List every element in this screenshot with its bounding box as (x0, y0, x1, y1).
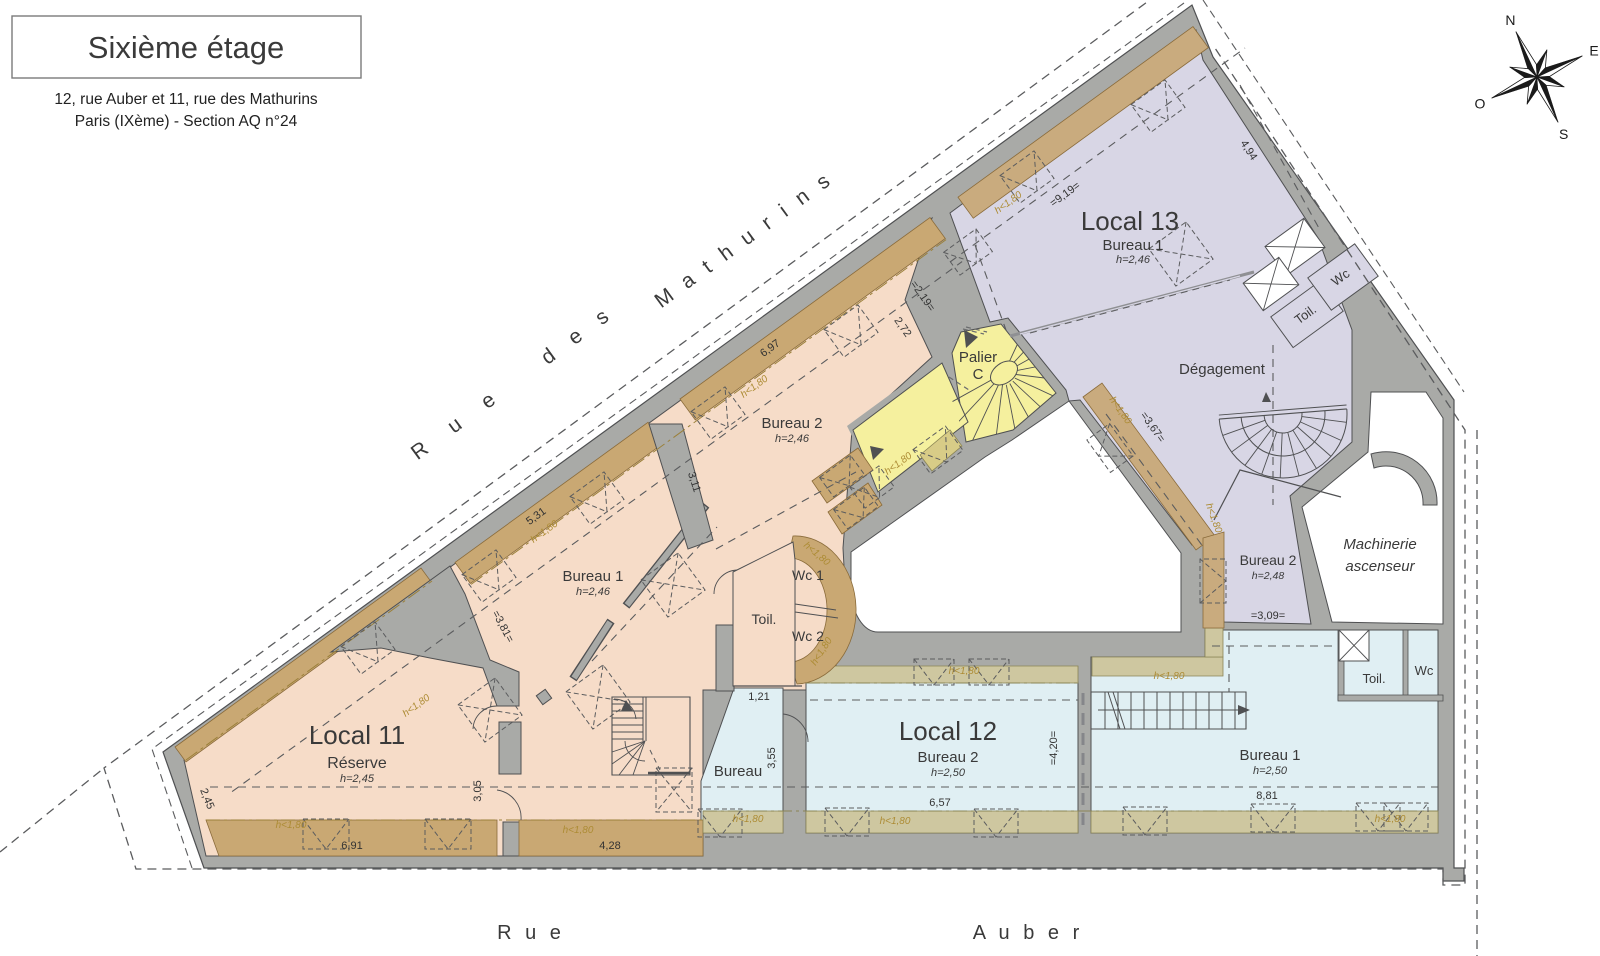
svg-text:3,05: 3,05 (472, 780, 484, 801)
svg-text:h=2,50: h=2,50 (931, 767, 966, 779)
svg-text:Toil.: Toil. (752, 611, 777, 627)
svg-text:3,55: 3,55 (766, 747, 778, 768)
svg-text:1,21: 1,21 (748, 691, 769, 703)
svg-text:E: E (1589, 42, 1598, 58)
svg-text:R u e: R u e (497, 922, 565, 944)
svg-text:Paris (IXème) - Section AQ n°2: Paris (IXème) - Section AQ n°24 (75, 113, 298, 130)
svg-text:Local 13: Local 13 (1081, 206, 1179, 236)
svg-text:C: C (973, 366, 984, 383)
svg-text:S: S (1559, 126, 1568, 142)
svg-text:N: N (1505, 12, 1515, 28)
svg-text:Machinerie: Machinerie (1343, 536, 1416, 553)
svg-text:4,28: 4,28 (599, 840, 620, 852)
svg-text:Sixième étage: Sixième étage (88, 30, 284, 65)
svg-text:h<1,80: h<1,80 (1154, 671, 1185, 682)
svg-text:Wc 1: Wc 1 (792, 567, 824, 583)
svg-text:Bureau 1: Bureau 1 (1240, 747, 1301, 764)
svg-text:Réserve: Réserve (327, 755, 387, 772)
svg-text:Wc: Wc (1415, 663, 1434, 678)
svg-text:Bureau: Bureau (714, 763, 762, 780)
svg-text:Dégagement: Dégagement (1179, 361, 1266, 378)
svg-text:Toil.: Toil. (1362, 671, 1385, 686)
svg-text:A u b e r: A u b e r (973, 922, 1084, 944)
svg-text:h=2,46: h=2,46 (775, 433, 810, 445)
svg-text:8,81: 8,81 (1256, 790, 1277, 802)
svg-text:6,57: 6,57 (929, 797, 950, 809)
svg-text:Bureau 2: Bureau 2 (918, 749, 979, 766)
svg-text:=4,20=: =4,20= (1048, 731, 1060, 765)
svg-text:ascenseur: ascenseur (1345, 558, 1415, 575)
svg-text:12, rue Auber et 11, rue des M: 12, rue Auber et 11, rue des Mathurins (54, 91, 318, 108)
svg-text:Bureau 1: Bureau 1 (1103, 237, 1164, 254)
svg-text:Bureau 2: Bureau 2 (762, 415, 823, 432)
svg-text:Local 12: Local 12 (899, 716, 997, 746)
svg-text:h=2,46: h=2,46 (1116, 254, 1151, 266)
svg-text:Bureau 1: Bureau 1 (563, 568, 624, 585)
svg-text:h=2,45: h=2,45 (340, 773, 375, 785)
svg-text:=3,09=: =3,09= (1251, 610, 1285, 622)
svg-text:Local 11: Local 11 (309, 720, 405, 750)
svg-text:h<1,80: h<1,80 (1375, 814, 1406, 825)
svg-text:h<1,80: h<1,80 (949, 666, 980, 677)
svg-text:h=2,46: h=2,46 (576, 586, 611, 598)
svg-text:Wc 2: Wc 2 (792, 628, 824, 644)
svg-text:6,91: 6,91 (341, 840, 362, 852)
svg-text:O: O (1474, 96, 1485, 112)
svg-text:h<1,80: h<1,80 (563, 825, 594, 836)
svg-text:h=2,50: h=2,50 (1253, 765, 1288, 777)
svg-text:h<1,80: h<1,80 (880, 816, 911, 827)
svg-text:h<1,80: h<1,80 (733, 814, 764, 825)
svg-text:Bureau 2: Bureau 2 (1240, 552, 1297, 568)
svg-text:h=2,48: h=2,48 (1252, 570, 1285, 582)
svg-text:Palier: Palier (959, 349, 997, 366)
svg-text:h<1,80: h<1,80 (276, 820, 307, 831)
